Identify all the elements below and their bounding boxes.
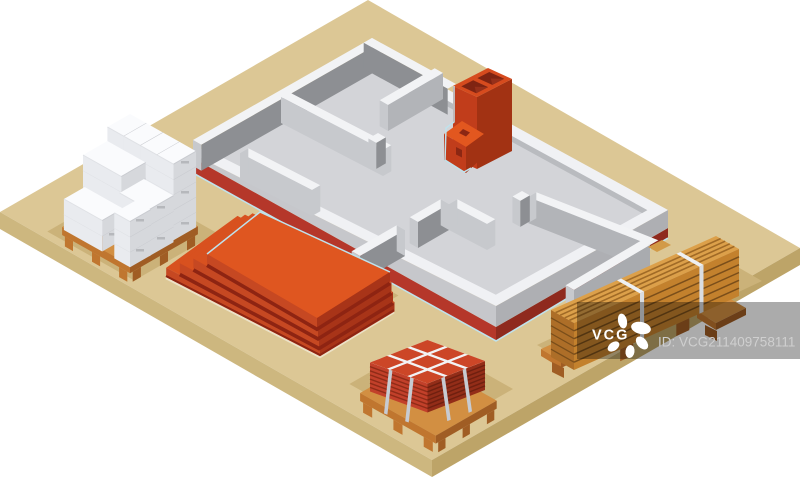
svg-text:VCG: VCG — [592, 328, 629, 344]
svg-text:ID: VCG211409758111: ID: VCG211409758111 — [658, 335, 795, 350]
